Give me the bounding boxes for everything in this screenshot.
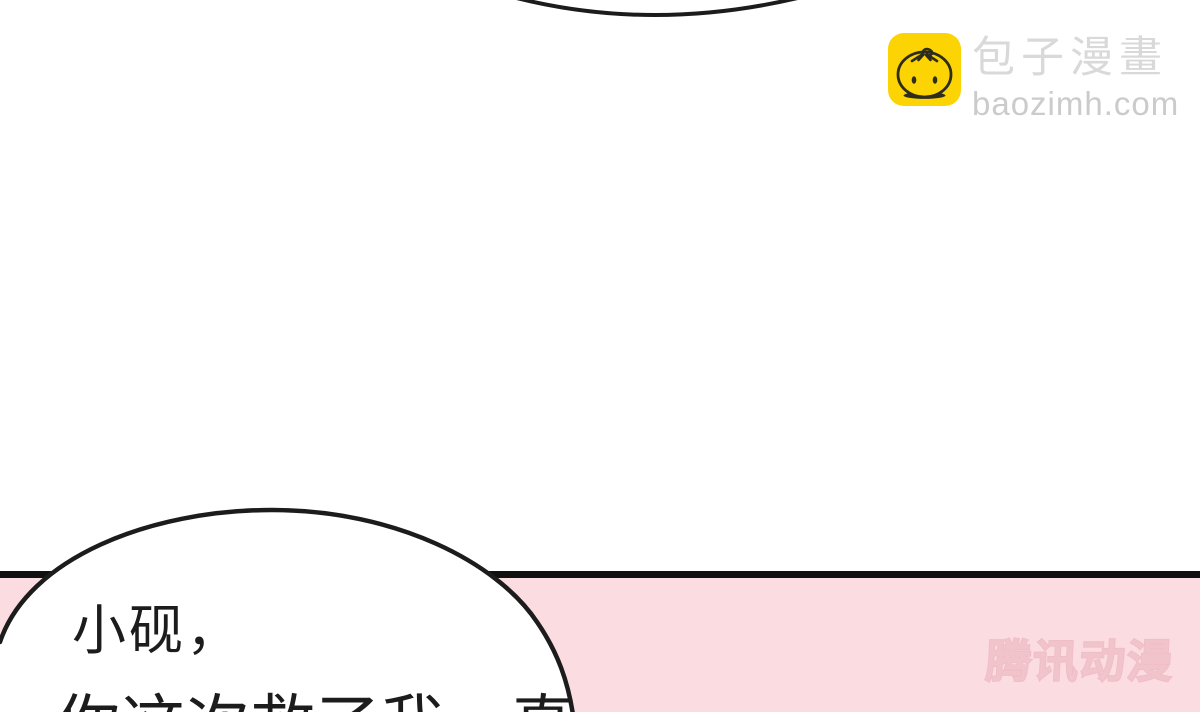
site-url: baozimh.com <box>972 87 1179 120</box>
speech-bubble-top-arc <box>505 0 810 15</box>
site-name: 包子漫畫 <box>972 37 1179 80</box>
baozi-logo-icon <box>888 33 961 106</box>
comic-page: 腾讯动漫 小砚， 你这次救了我，真 <box>0 0 1200 712</box>
site-branding: 包子漫畫 baozimh.com <box>888 33 1179 120</box>
brand-text: 包子漫畫 baozimh.com <box>972 33 1179 120</box>
dialogue-line-2: 你这次救了我，真 <box>56 674 576 712</box>
dialogue-line-1: 小砚， <box>72 586 243 665</box>
